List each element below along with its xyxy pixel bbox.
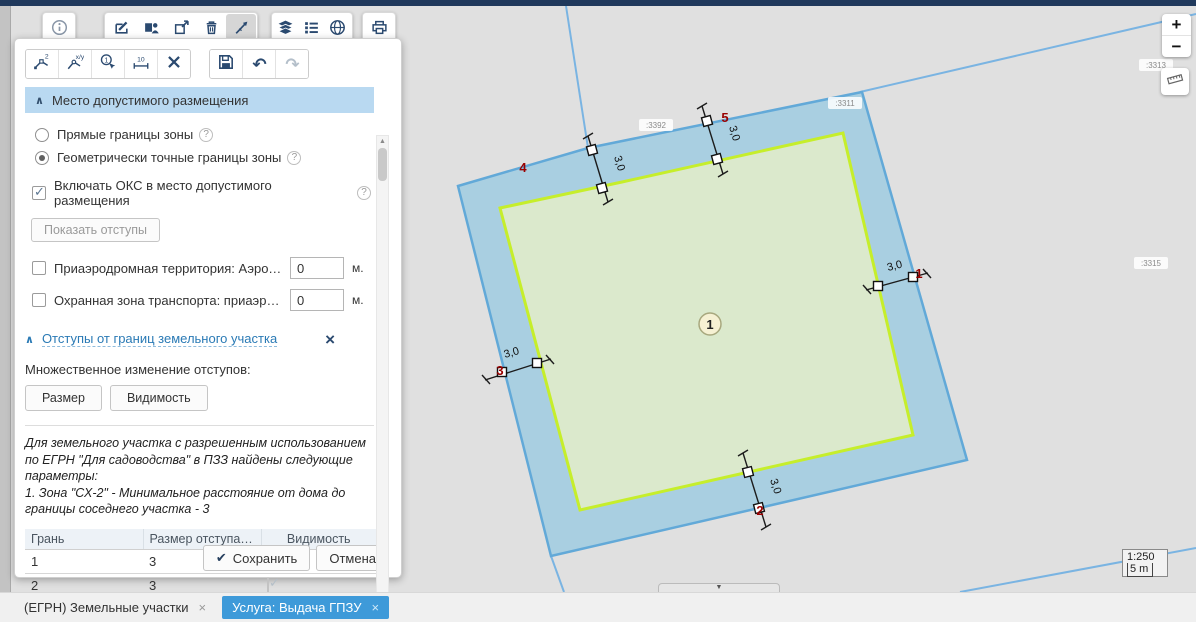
divider [25,425,374,426]
scrollbar-thumb[interactable] [378,148,387,181]
aerodrome-zone-row: Приаэродромная территория: Аэродром а...… [32,257,389,279]
include-oks-checkbox[interactable] [32,186,46,200]
select-contour-icon: 1 [99,53,117,76]
visibility-checkbox[interactable] [267,577,269,594]
save-icon [217,53,235,76]
size-button[interactable]: Размер [25,385,102,411]
select-object-icon [143,19,160,36]
parcel-number: :3315 [1141,259,1162,268]
ruler-icon [1165,71,1185,92]
zoom-control: + − [1162,14,1191,57]
layers-button[interactable] [273,14,299,40]
transport-zone-checkbox[interactable] [32,293,46,307]
open-in-window-button[interactable] [166,14,196,40]
measure-button[interactable] [226,14,256,40]
trash-icon [203,19,220,36]
svg-text:1: 1 [104,55,108,64]
parcel-number: :3311 [835,99,855,108]
panel-body: ∧ Место допустимого размещения Прямые гр… [15,87,401,577]
redo-icon: ↷ [285,56,299,73]
edge-number-4: 4 [519,160,527,175]
radio-label: Геометрически точные границы зоны [57,150,281,165]
zoom-in-button[interactable]: + [1162,14,1191,35]
svg-text:2: 2 [45,53,49,60]
delete-sketch-button[interactable] [158,50,190,78]
edge-number-1: 1 [915,266,922,281]
help-icon[interactable]: ? [199,128,213,142]
contour-marker-number: 1 [706,317,713,332]
placement-section-header[interactable]: ∧ Место допустимого размещения [25,87,374,113]
transport-zone-row: Охранная зона транспорта: приаэродром...… [32,289,389,311]
setbacks-section-header: ∧ Отступы от границ земельного участка × [25,331,371,347]
tab-egrn-parcels[interactable]: (ЕГРН) Земельные участки × [14,596,216,619]
radio-label: Прямые границы зоны [57,127,193,142]
tab-label: (ЕГРН) Земельные участки [24,600,189,615]
col-face[interactable]: Грань [25,529,143,550]
scroll-up-icon[interactable]: ▲ [377,138,388,145]
zone-unit: м. [352,261,364,275]
straight-borders-option[interactable]: Прямые границы зоны ? [35,127,371,142]
zone-label: Охранная зона транспорта: приаэродром... [54,293,286,308]
check-icon: ✔ [216,550,227,566]
show-setbacks-button[interactable]: Показать отступы [31,218,160,242]
app-window: 3,0 3,0 3,0 3,0 3,0 1 2 3 4 5 :3392 :331… [0,0,1196,622]
sketch-toolbar: 2 x/y 1 10 ↶ [25,49,309,79]
edge-number-3: 3 [496,363,503,378]
face-cell: 1 [25,549,143,573]
save-sketch-button[interactable] [210,50,243,78]
help-icon[interactable]: ? [287,151,301,165]
edit-button[interactable] [106,14,136,40]
panel-footer: ✔Сохранить Отмена [203,545,389,571]
zone-unit: м. [352,293,364,307]
collapse-chevron-icon[interactable]: ∧ [25,333,34,346]
measure-icon [233,19,250,36]
pzz-note: Для земельного участка с разрешенным исп… [25,435,367,518]
help-icon[interactable]: ? [357,186,371,200]
window-top-strip [0,0,1196,6]
zone-label: Приаэродромная территория: Аэродром а... [54,261,286,276]
setbacks-section-title[interactable]: Отступы от границ земельного участка [42,331,277,347]
bottom-tab-bar: (ЕГРН) Земельные участки × Услуга: Выдач… [0,592,1196,622]
aerodrome-zone-input[interactable] [290,257,344,279]
layers-icon [277,19,294,36]
visibility-button[interactable]: Видимость [110,385,208,411]
aerodrome-zone-checkbox[interactable] [32,261,46,275]
radio-precise-borders[interactable] [35,151,49,165]
edge-number-5: 5 [721,110,728,125]
add-vertex-icon: 2 [33,53,51,76]
scale-ratio: 1:250 [1127,551,1167,563]
delete-button[interactable] [196,14,226,40]
tab-label: Услуга: Выдача ГПЗУ [232,600,361,615]
transport-zone-input[interactable] [290,289,344,311]
close-tab-icon[interactable]: × [371,600,379,615]
select-object-button[interactable] [136,14,166,40]
close-x-icon [165,53,183,76]
collapse-chevron-icon: ∧ [35,94,44,107]
edit-icon [113,19,130,36]
legend-button[interactable] [299,14,325,40]
add-vertex-button[interactable]: 2 [26,50,59,78]
open-in-window-icon [173,19,190,36]
basemap-button[interactable] [325,14,351,40]
bottom-panel-collapse-handle[interactable]: ▼ [658,583,780,592]
parcel-number: :3392 [646,121,667,130]
contour-marker[interactable]: 1 [699,313,721,335]
close-tab-icon[interactable]: × [199,600,207,615]
left-splitter[interactable] [0,6,11,592]
placement-section-title: Место допустимого размещения [52,93,248,108]
zoom-out-button[interactable]: − [1162,35,1191,57]
dimensions-button[interactable]: 10 [125,50,158,78]
select-contour-button[interactable]: 1 [92,50,125,78]
info-button[interactable] [44,14,74,40]
include-oks-option[interactable]: Включать ОКС в место допустимого размеще… [32,178,371,208]
precise-borders-option[interactable]: Геометрически точные границы зоны ? [35,150,371,165]
tab-gpzu-service[interactable]: Услуга: Выдача ГПЗУ × [222,596,389,619]
edit-coordinates-icon: x/y [66,53,84,76]
print-icon [371,19,388,36]
checkbox-label: Включать ОКС в место допустимого размеще… [54,178,351,208]
globe-icon [329,19,346,36]
close-section-icon[interactable]: × [325,331,335,348]
collapse-icon: ▼ [716,584,723,591]
radio-straight-borders[interactable] [35,128,49,142]
multi-edit-label: Множественное изменение отступов: [25,362,401,377]
edit-coordinates-button[interactable]: x/y [59,50,92,78]
setbacks-panel: 2 x/y 1 10 ↶ [14,38,402,578]
dimensions-icon: 10 [132,53,150,76]
edge-number-2: 2 [756,503,763,518]
panel-scrollbar[interactable]: ▲ ▼ [376,135,389,622]
save-button[interactable]: ✔Сохранить [203,545,311,571]
ruler-tool-button[interactable] [1161,68,1189,95]
undo-icon: ↶ [252,56,266,73]
list-icon [303,19,320,36]
scale-bar: 5 m [1127,563,1153,577]
redo-button[interactable]: ↷ [276,50,308,78]
scale-indicator: 1:250 5 m [1122,549,1168,577]
info-icon [51,19,68,36]
print-button[interactable] [364,14,394,40]
undo-button[interactable]: ↶ [243,50,276,78]
svg-text:x/y: x/y [76,54,84,61]
svg-text:10: 10 [137,56,145,63]
